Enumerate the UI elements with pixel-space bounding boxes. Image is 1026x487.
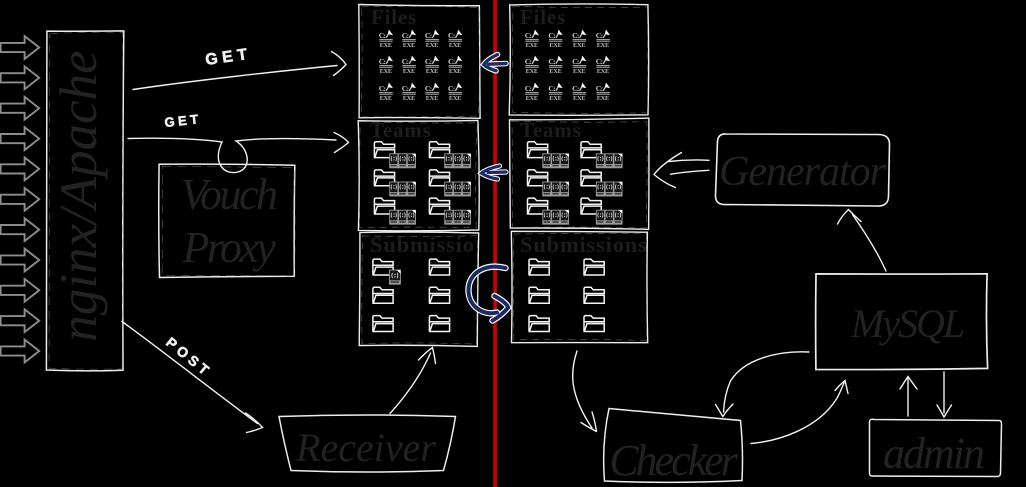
svg-text:MySQL: MySQL bbox=[850, 301, 964, 346]
svg-text:Submissio: Submissio bbox=[370, 232, 475, 257]
svg-text:admin: admin bbox=[883, 429, 984, 478]
svg-text:Submissions: Submissions bbox=[520, 232, 648, 257]
svg-text:Vouch: Vouch bbox=[180, 170, 277, 219]
svg-text:Teams: Teams bbox=[370, 118, 432, 142]
svg-text:Generator: Generator bbox=[719, 149, 887, 195]
svg-text:Files: Files bbox=[371, 5, 417, 29]
svg-text:nginx/Apache: nginx/Apache bbox=[50, 50, 108, 341]
svg-text:Teams: Teams bbox=[520, 118, 582, 142]
svg-text:Receiver: Receiver bbox=[295, 425, 436, 470]
svg-text:Checker: Checker bbox=[609, 436, 738, 485]
svg-text:Files: Files bbox=[520, 5, 566, 29]
svg-text:Proxy: Proxy bbox=[182, 223, 277, 272]
